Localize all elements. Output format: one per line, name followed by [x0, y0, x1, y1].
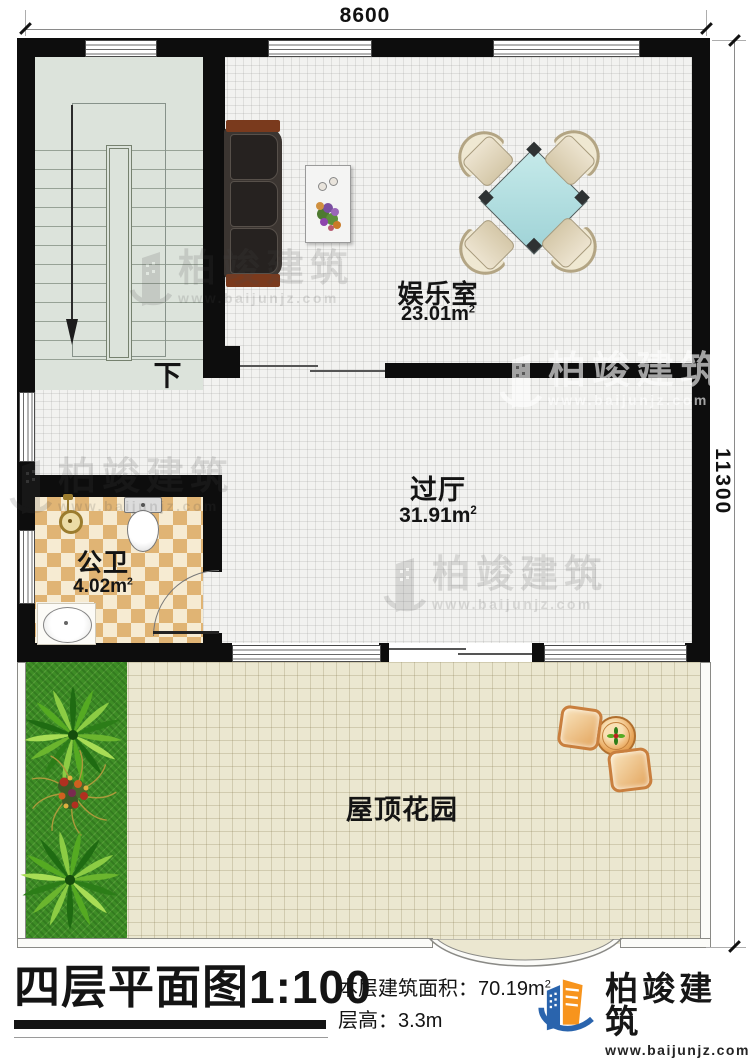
floor-height-line: 层高：3.3m: [338, 1004, 442, 1033]
floor-area-line: 本层建筑面积：70.19m2: [338, 972, 551, 1001]
dimension-right-value: 11300: [710, 448, 734, 515]
window: [85, 40, 157, 57]
room-area-entertainment: 23.01m2: [368, 304, 508, 324]
floor-height-label: 层高：: [338, 1010, 398, 1032]
area-sup: 2: [127, 577, 133, 588]
brand-logo-icon: [538, 972, 597, 1034]
wall-entertainment-hall: [385, 363, 692, 378]
stair-wall-corner-block: [203, 346, 240, 378]
floor-plan-page: .cushion{left:8px;width:46px;height:44px…: [0, 0, 750, 1046]
title-underline-thin: [14, 1037, 328, 1038]
sofa-icon: [222, 118, 284, 288]
sheet-title: 四层平面图1:100: [14, 964, 372, 1010]
window: [19, 530, 35, 604]
stair-down-label: 下: [148, 362, 188, 390]
room-area-bathroom: 4.02m2: [48, 577, 158, 596]
window: [544, 645, 687, 662]
garden-stool-icon: [556, 704, 603, 751]
floor-height-value: 3.3m: [398, 1010, 442, 1032]
window: [19, 392, 35, 462]
brand-name: 柏竣建筑: [605, 972, 750, 1038]
exterior-wall-bottom-left: [17, 643, 232, 662]
garden-stool-icon: [607, 747, 654, 794]
garden-parapet-bottom-left: [17, 938, 433, 948]
flower-vase-icon: [309, 192, 347, 238]
sink-icon: [37, 603, 96, 645]
stair-direction-arrow: [71, 105, 73, 327]
exterior-wall-right: [692, 38, 710, 662]
sliding-door: [389, 647, 532, 657]
garden-parapet-bottom-right: [620, 938, 711, 948]
room-area-hall: 31.91m2: [368, 505, 508, 526]
bathroom-door-leaf: [153, 631, 219, 634]
bathroom-wall-right: [203, 475, 222, 572]
area-sup: 2: [470, 505, 476, 517]
coffee-table-icon: [305, 165, 351, 243]
stair-arrow-head-icon: [66, 319, 78, 345]
area-sup: 2: [469, 303, 475, 315]
window: [493, 40, 640, 57]
potted-plant-icon: [606, 726, 626, 746]
window: [232, 645, 381, 662]
brand-url: www.baijunjz.com: [605, 1042, 750, 1058]
room-label-roof-garden: 屋顶花园: [332, 797, 472, 824]
area-value: 4.02m: [73, 576, 127, 597]
sheet-title-text: 四层平面图: [14, 961, 249, 1013]
dimension-line-top: [25, 29, 707, 30]
wall-pier-2: [532, 643, 544, 662]
footer: 四层平面图1:100 本层建筑面积：70.19m2 层高：3.3m 柏竣建筑 w…: [0, 958, 750, 1046]
area-value: 31.91m: [399, 504, 470, 527]
garden-parapet-right: [700, 662, 711, 948]
extension-line: [706, 947, 746, 948]
exterior-wall-bottom-right: [685, 643, 710, 662]
area-value: 23.01m: [401, 303, 469, 325]
floor-area-value: 70.19m: [478, 978, 545, 1000]
extension-line: [25, 10, 26, 36]
sliding-door: [240, 364, 385, 374]
shower-icon: [58, 494, 82, 532]
dimension-top-value: 8600: [333, 4, 397, 28]
room-label-hall: 过厅: [368, 477, 508, 504]
floor-area-label: 本层建筑面积：: [338, 978, 478, 1000]
staircase: [35, 57, 203, 390]
window: [268, 40, 372, 57]
title-underline: [14, 1020, 326, 1029]
stair-railing: [106, 145, 132, 361]
brand-block: 柏竣建筑 www.baijunjz.com: [538, 972, 750, 1058]
toilet-icon: [124, 497, 160, 551]
room-label-bathroom: 公卫: [48, 551, 158, 576]
dimension-line-right: [734, 41, 735, 948]
palm-tree-icon: [14, 824, 126, 936]
extension-line: [706, 10, 707, 36]
bathroom-wall-top: [17, 475, 222, 497]
extension-line: [712, 40, 746, 41]
